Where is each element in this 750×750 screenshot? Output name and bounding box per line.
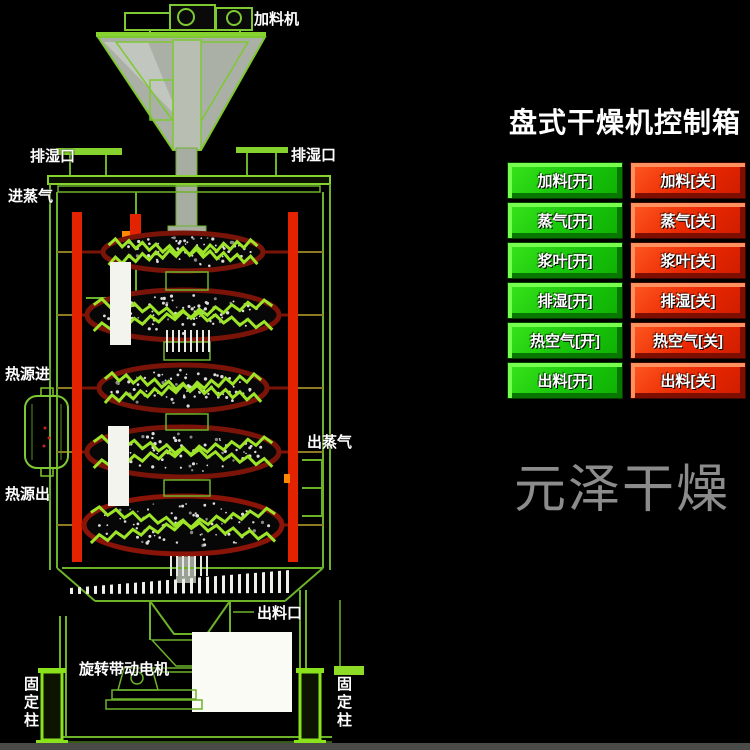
steam-pipe-left <box>72 212 82 562</box>
btn-paddle-on[interactable]: 浆叶[开] <box>507 242 623 279</box>
label-fixed-column-left: 固定柱 <box>20 676 41 730</box>
hopper <box>98 37 265 150</box>
label-heat-out: 热源出 <box>5 483 50 504</box>
label-vent-right: 排湿口 <box>291 144 336 165</box>
feeder-assembly <box>96 5 266 37</box>
screenshot-root: 加料机 排湿口 排湿口 进蒸气 热源进 热源出 出蒸气 出料口 旋转带动电机 固… <box>0 0 750 750</box>
btn-steam-off[interactable]: 蒸气[关] <box>630 202 746 239</box>
label-vent-left: 排湿口 <box>30 145 75 166</box>
bottom-strip <box>0 743 750 750</box>
btn-hot-air-on[interactable]: 热空气[开] <box>507 322 623 359</box>
label-fixed-column-right: 固定柱 <box>333 676 354 730</box>
btn-paddle-off[interactable]: 浆叶[关] <box>630 242 746 279</box>
btn-feed-on[interactable]: 加料[开] <box>507 162 623 199</box>
steam-pipe-right <box>288 212 298 562</box>
vent-stubs <box>56 147 288 178</box>
heat-exchanger <box>25 388 68 476</box>
btn-dehumidify-on[interactable]: 排湿[开] <box>507 282 623 319</box>
label-feeder: 加料机 <box>254 8 299 29</box>
btn-dehumidify-off[interactable]: 排湿[关] <box>630 282 746 319</box>
particle-chute-hatch <box>166 330 212 352</box>
btn-discharge-off[interactable]: 出料[关] <box>630 362 746 399</box>
watermark: 元泽干燥 <box>514 447 730 522</box>
particle-chute-hatch <box>170 556 210 576</box>
control-button-grid: 加料[开] 加料[关] 蒸气[开] 蒸气[关] 浆叶[开] 浆叶[关] 排湿[开… <box>507 162 746 399</box>
drive-motor-box <box>192 632 292 712</box>
label-drive-motor: 旋转带动电机 <box>79 658 169 679</box>
fixed-column-right-shape <box>294 668 326 746</box>
btn-discharge-on[interactable]: 出料[开] <box>507 362 623 399</box>
label-steam-out: 出蒸气 <box>307 431 352 452</box>
label-steam-in: 进蒸气 <box>8 185 53 206</box>
btn-steam-on[interactable]: 蒸气[开] <box>507 202 623 239</box>
btn-feed-off[interactable]: 加料[关] <box>630 162 746 199</box>
btn-hot-air-off[interactable]: 热空气[关] <box>630 322 746 359</box>
steam-out-bracket <box>302 460 322 516</box>
panel-title: 盘式干燥机控制箱 <box>502 101 748 141</box>
label-heat-in: 热源进 <box>5 363 50 384</box>
label-discharge: 出料口 <box>257 602 302 623</box>
